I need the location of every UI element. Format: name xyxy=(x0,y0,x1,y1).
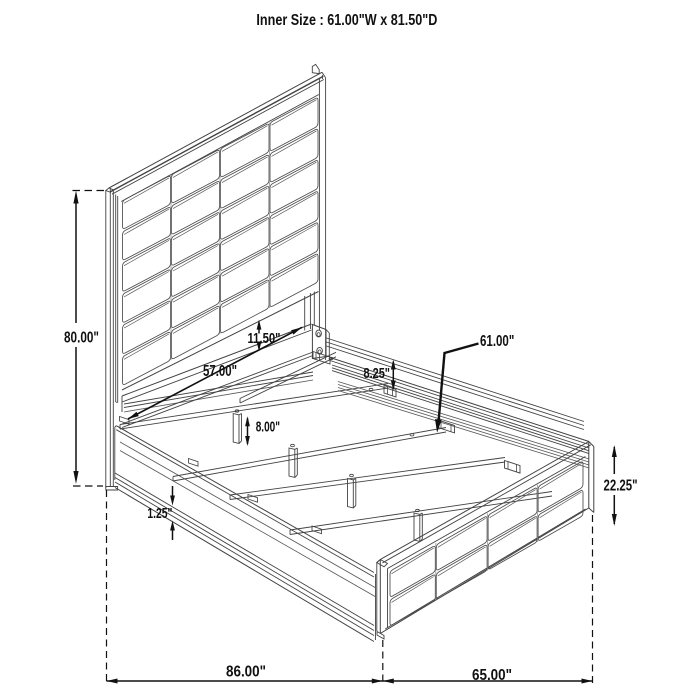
svg-text:22.25": 22.25" xyxy=(604,477,638,494)
svg-text:65.00": 65.00" xyxy=(472,667,512,684)
svg-text:11.50": 11.50" xyxy=(248,330,281,347)
svg-text:8.00": 8.00" xyxy=(256,418,280,435)
svg-text:Inner Size : 61.00"W x 81.50"D: Inner Size : 61.00"W x 81.50"D xyxy=(256,12,437,29)
svg-text:61.00": 61.00" xyxy=(480,333,514,350)
svg-text:80.00": 80.00" xyxy=(64,330,99,347)
svg-text:86.00": 86.00" xyxy=(226,663,266,680)
svg-text:1.25": 1.25" xyxy=(147,505,172,522)
svg-text:57.00": 57.00" xyxy=(203,363,237,380)
svg-text:8.25": 8.25" xyxy=(364,365,391,382)
